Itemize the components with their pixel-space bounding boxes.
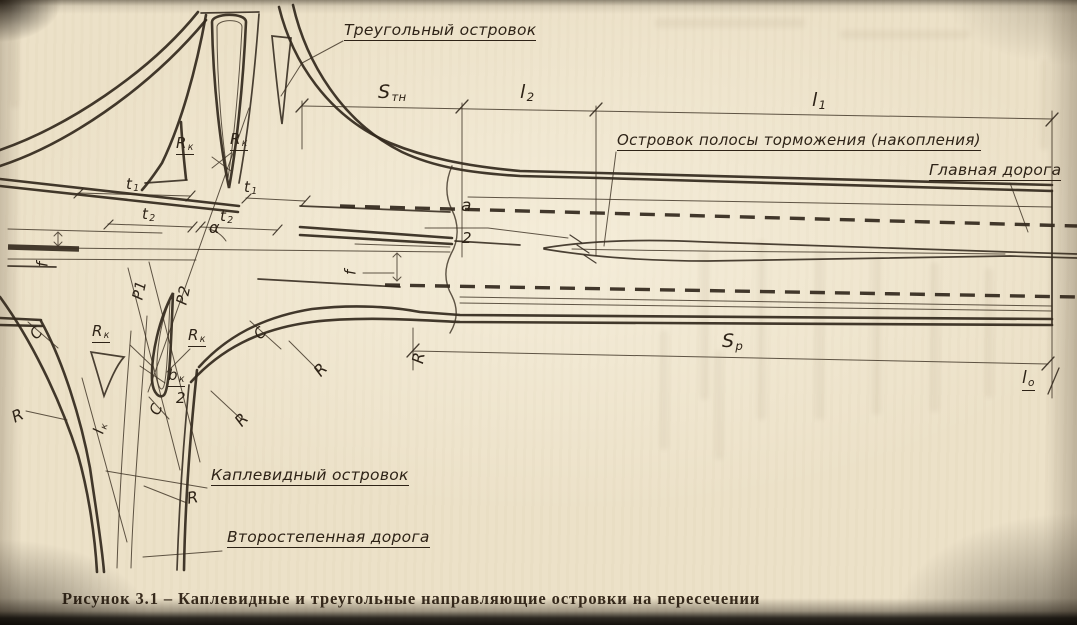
dimension-label-b-half-numerator: bк (168, 367, 185, 387)
dimension-label-t1-right: t1 (244, 179, 257, 197)
figure-caption: Рисунок 3.1 – Каплевидные и треугольные … (62, 589, 760, 609)
main-road-label: Главная дорога (929, 162, 1061, 181)
dimension-label-s-tn: Sтн (378, 82, 407, 104)
dimension-label-lo: lо (1022, 369, 1035, 391)
road-edges (0, 5, 1077, 572)
teardrop-island-label: Каплевидный островок (211, 467, 409, 486)
dimension-label-t2-left: t2 (142, 206, 155, 224)
dimension-label-f-left: f (35, 261, 52, 267)
radius-rk-label-nw: Rк (176, 135, 194, 155)
dimension-label-b-half-denominator: 2 (176, 390, 186, 407)
secondary-road-label: Второстепенная дорога (227, 529, 430, 548)
dimension-label-t1-left: t1 (126, 176, 139, 194)
dimension-label-a-half-denominator: 2 (462, 230, 472, 247)
dimension-label-l1: l1 (812, 90, 826, 112)
dimension-label-l2: l2 (520, 82, 534, 104)
intersection-diagram (0, 0, 1077, 625)
braking-lane-island-label: Островок полосы торможения (накопления) (617, 132, 981, 151)
radius-rk-label-sw: Rк (92, 323, 110, 343)
radius-rk-label-ne: Rк (230, 131, 248, 151)
dimension-label-t2-right: t2 (220, 208, 233, 226)
dimension-label-a-half-numerator: a (461, 197, 472, 216)
radius-rk-label-se: Rк (188, 327, 206, 347)
point-p1-label: Р1 (130, 279, 150, 301)
point-p2-label: Р2 (174, 284, 194, 306)
angle-alpha-label: α (209, 219, 220, 237)
dimension-label-f-center: f (343, 269, 360, 275)
scanned-figure-page: Треугольный островок Островок полосы тор… (0, 0, 1077, 625)
triangular-island-label: Треугольный островок (344, 22, 536, 41)
dimension-label-sp: Sp (722, 331, 743, 353)
